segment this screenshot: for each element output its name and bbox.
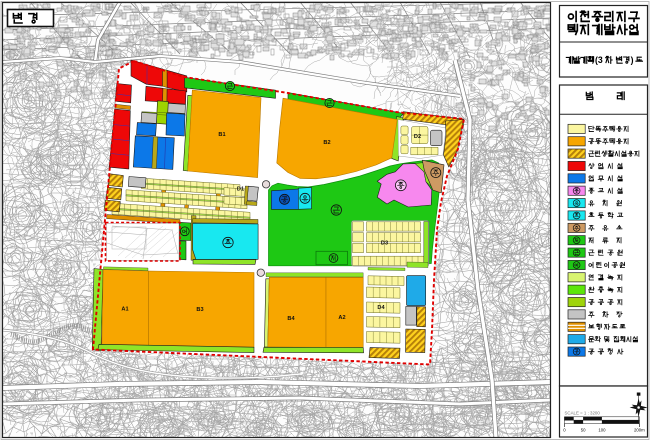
svg-text:200m: 200m: [634, 428, 645, 433]
svg-text:A2: A2: [338, 315, 345, 321]
svg-text:100: 100: [598, 428, 606, 433]
svg-text:(3: (3: [595, 55, 603, 65]
svg-text:D1: D1: [237, 187, 244, 193]
svg-text:B4: B4: [287, 316, 295, 322]
svg-text:D4: D4: [377, 305, 385, 311]
svg-text:): ): [631, 55, 634, 65]
svg-text:SCALE = 1 : 3200: SCALE = 1 : 3200: [565, 411, 601, 416]
svg-text:B2: B2: [323, 140, 330, 146]
svg-text:50: 50: [581, 428, 586, 433]
svg-text:B1: B1: [218, 132, 225, 138]
svg-text:B3: B3: [196, 307, 203, 313]
svg-text:D3: D3: [381, 241, 388, 247]
svg-text:A1: A1: [121, 307, 128, 313]
svg-text:D2: D2: [414, 134, 421, 140]
